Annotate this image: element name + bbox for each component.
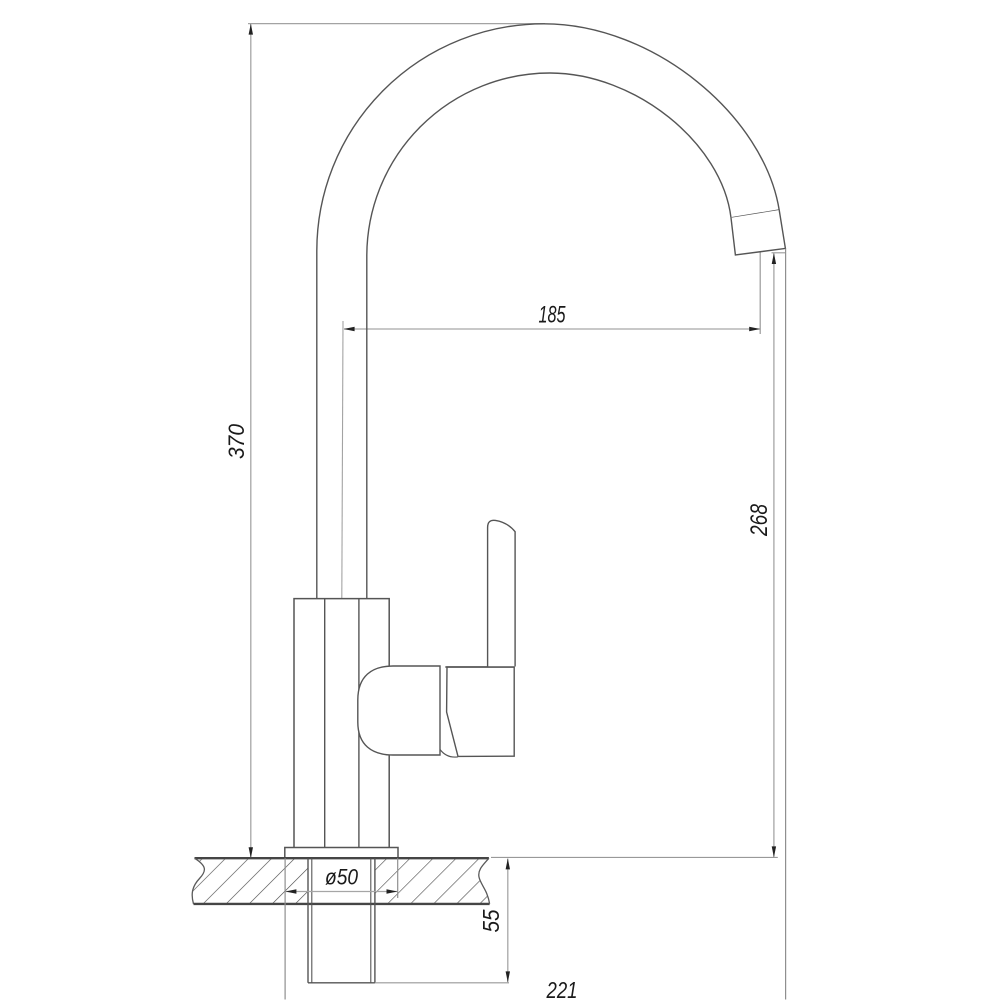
svg-text:185: 185 [539,301,566,328]
svg-text:370: 370 [224,424,249,459]
svg-text:55: 55 [478,909,504,932]
svg-text:221: 221 [546,977,578,1000]
svg-text:268: 268 [746,503,773,536]
svg-text:ø50: ø50 [325,865,359,890]
